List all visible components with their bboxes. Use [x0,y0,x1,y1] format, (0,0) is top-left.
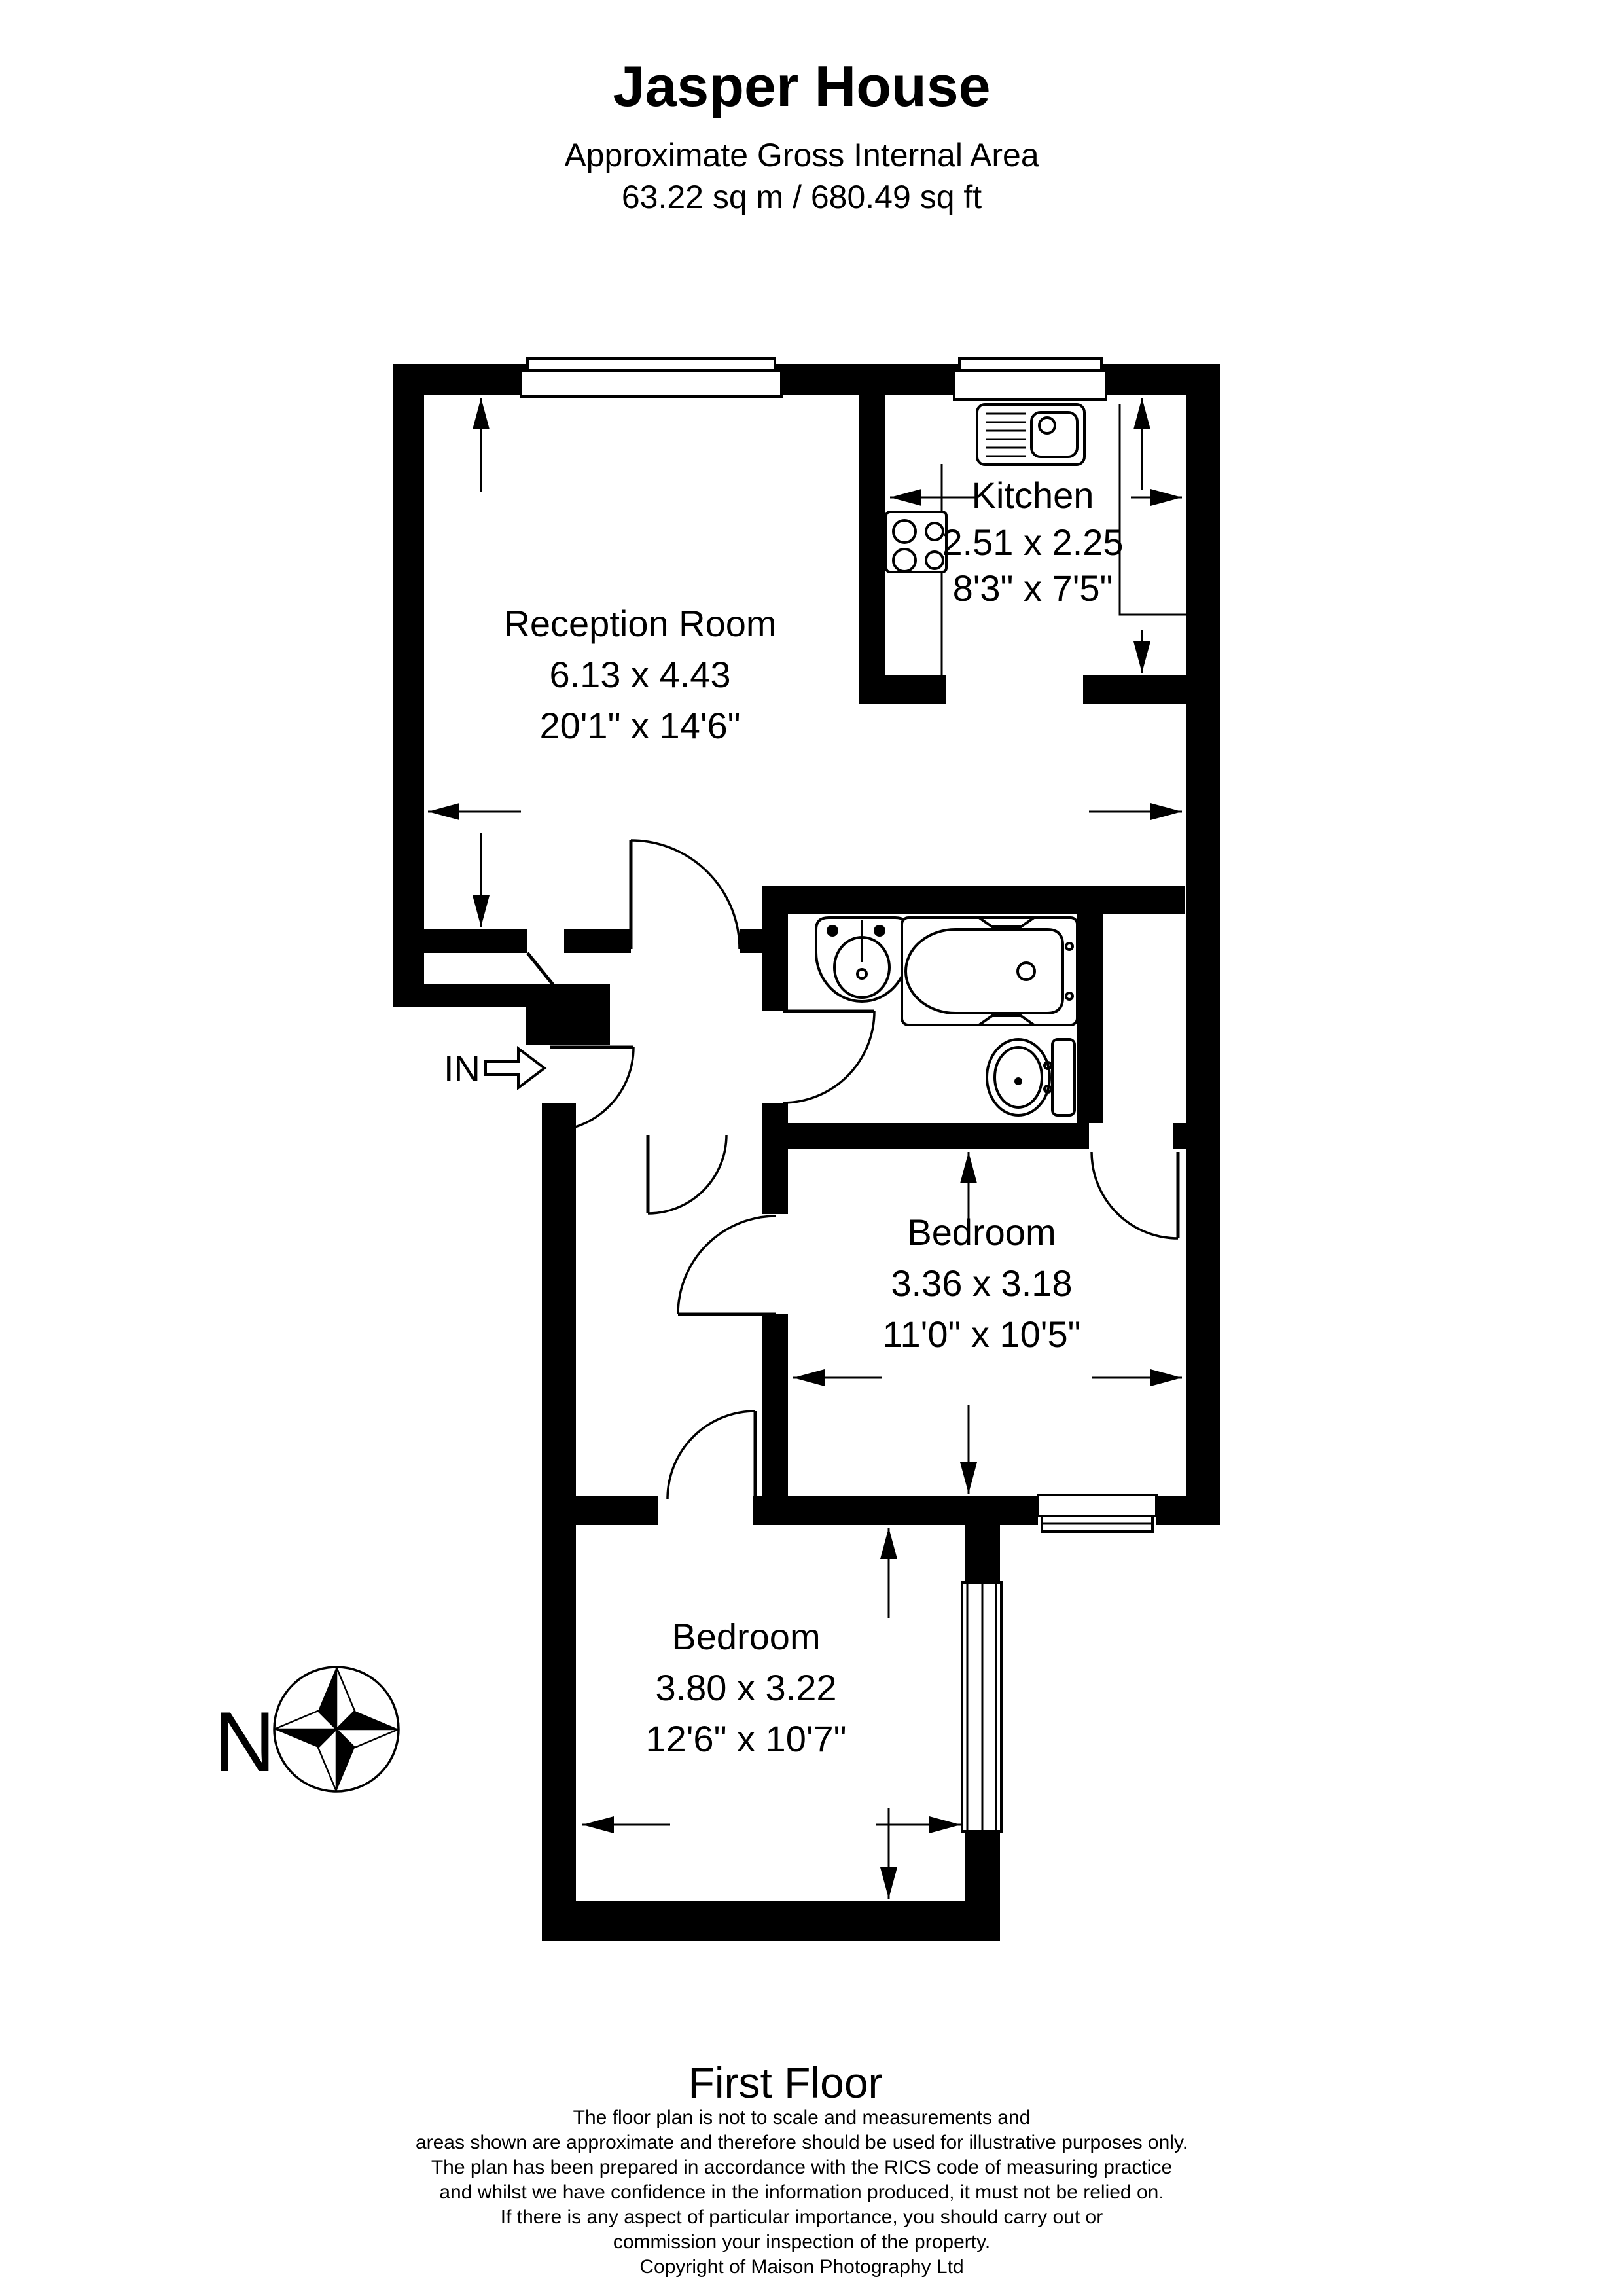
wall-segment [576,1496,658,1525]
wall-segment [762,1123,1089,1149]
compass-north-label: N [214,1694,276,1789]
disclaimer-line: The floor plan is not to scale and measu… [573,2107,1031,2128]
kitchen-window [954,359,1106,399]
entrance-arrow-icon [486,1049,544,1088]
wall-segment [740,929,762,953]
wall-segment [753,1496,1038,1525]
floor-label: First Floor [688,2058,883,2107]
wall-segment [1173,1123,1186,1149]
compass-rose-icon [274,1667,399,1791]
wall-segment [762,1314,788,1496]
wall-segment [1077,914,1103,1123]
wall-segment [1083,675,1186,704]
wall-segment [1156,1496,1220,1525]
footer: First Floor The floor plan is not to sca… [416,2058,1188,2278]
reception-imperial: 20'1" x 14'6" [539,705,740,746]
floorplan-canvas: Jasper House Approximate Gross Internal … [0,0,1623,2296]
disclaimer-line: areas shown are approximate and therefor… [416,2132,1188,2153]
bedroom1-window [1038,1495,1156,1532]
wall-segment [1186,364,1220,1525]
reception-door-arc [631,840,740,949]
wall-segment [965,1830,1000,1902]
wall-segment [859,675,946,704]
page-subtitle: Approximate Gross Internal Area [564,137,1039,173]
disclaimer-line: commission your inspection of the proper… [613,2231,990,2253]
wall-segment [564,929,631,953]
disclaimer-line: If there is any aspect of particular imp… [501,2206,1103,2228]
kitchen-metric: 2.51 x 2.25 [942,522,1123,563]
entrance-label: IN [444,1048,480,1089]
wall-segment [762,886,1185,914]
disclaimer-line: The plan has been prepared in accordance… [431,2157,1172,2178]
bedroom2-window [962,1583,1001,1831]
disclaimer-copyright: Copyright of Maison Photography Ltd [639,2256,963,2278]
hob-icon [886,512,946,572]
bedroom2-metric: 3.80 x 3.22 [655,1667,836,1708]
kitchen-imperial: 8'3" x 7'5" [953,567,1113,609]
wall-segment [393,929,527,953]
bathroom-door-arc [783,1011,874,1103]
wall-segment [526,984,610,1045]
page-title: Jasper House [613,54,990,118]
gross-area-value: 63.22 sq m / 680.49 sq ft [622,179,982,215]
reception-window [521,359,781,397]
entrance-marker: IN [444,1048,544,1089]
reception-name: Reception Room [503,603,776,644]
wall-segment [542,1901,1000,1941]
wall-segment [393,364,424,1007]
wall-segment [542,1103,576,1941]
bedroom2-door-arc [668,1411,755,1499]
hall-door-arc [648,1135,726,1213]
floorplan-page: Jasper House Approximate Gross Internal … [0,0,1623,2296]
bedroom1-door-arc [678,1216,776,1314]
wall-segment [859,395,885,704]
bedroom1-imperial: 11'0" x 10'5" [883,1314,1081,1355]
disclaimer-line: and whilst we have confidence in the inf… [439,2181,1164,2203]
bedroom1-metric: 3.36 x 3.18 [891,1263,1072,1304]
basin-icon [816,918,908,1001]
toilet-icon [987,1039,1075,1115]
bath-icon [902,918,1077,1025]
header: Jasper House Approximate Gross Internal … [564,54,1039,215]
reception-metric: 6.13 x 4.43 [549,654,730,695]
closet-door-arc [1092,1152,1178,1238]
bedroom1-name: Bedroom [907,1211,1056,1253]
wall-segment [762,1103,788,1214]
bedroom2-name: Bedroom [671,1616,820,1657]
compass: N [214,1667,399,1791]
kitchen-name: Kitchen [972,475,1094,516]
wall-segment [965,1525,1000,1584]
kitchen-sink-icon [977,404,1084,465]
bedroom2-imperial: 12'6" x 10'7" [645,1718,846,1759]
